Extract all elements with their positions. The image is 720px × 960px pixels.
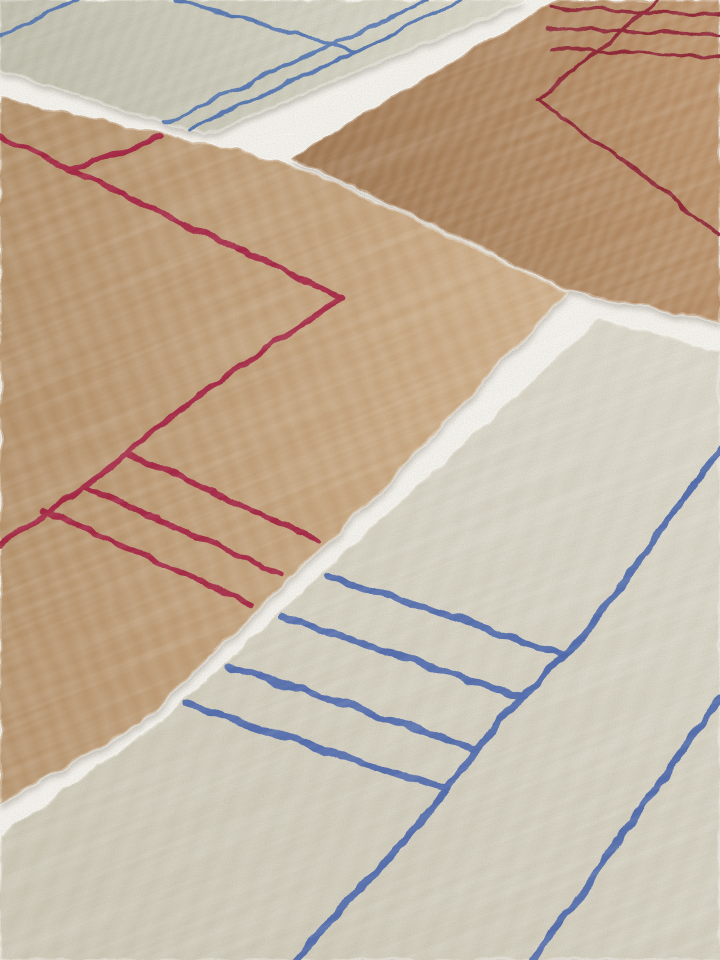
rug-photo-canvas [0,0,720,960]
photo-grain [0,0,720,960]
rugs-photograph [0,0,720,960]
